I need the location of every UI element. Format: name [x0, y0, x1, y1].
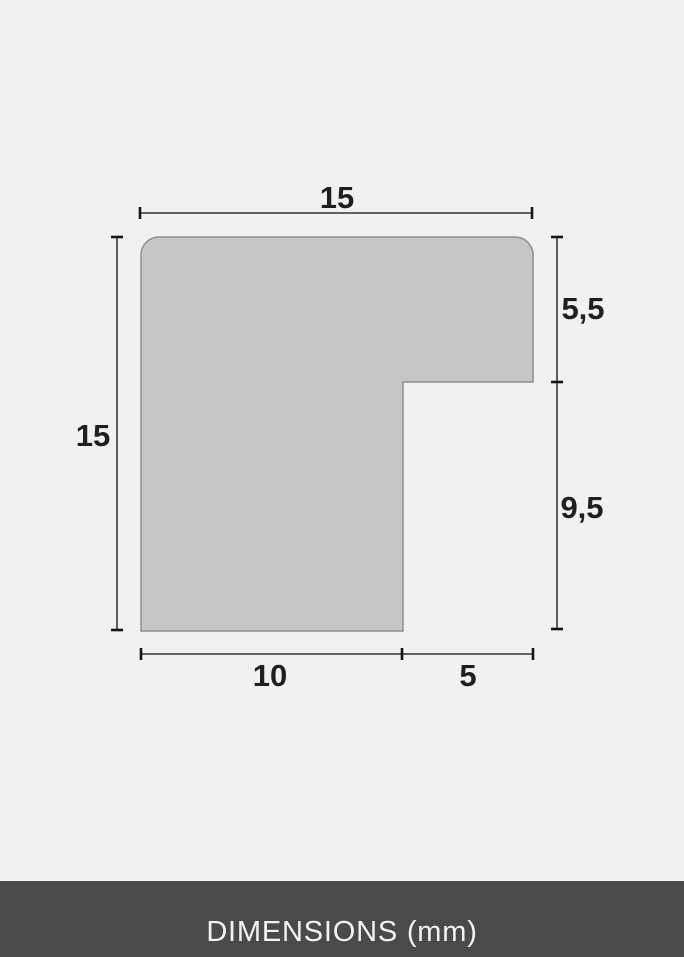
page: 15 15 5,5 9,5 10 5 DIMENSIONS (mm)	[0, 0, 684, 957]
dim-label-bottom-inner: 10	[253, 658, 287, 693]
dim-label-top-width: 15	[320, 180, 354, 215]
dim-label-bottom-outer: 5	[459, 658, 476, 693]
frame-profile-shape	[141, 237, 533, 631]
diagram-canvas: 15 15 5,5 9,5 10 5	[0, 0, 684, 881]
footer-caption: DIMENSIONS (mm)	[206, 916, 477, 949]
dim-label-right-lower: 9,5	[560, 490, 603, 525]
dim-label-left-height: 15	[76, 418, 110, 453]
dim-label-right-upper: 5,5	[561, 291, 604, 326]
frame-profile-diagram: 15 15 5,5 9,5 10 5	[0, 0, 684, 881]
footer-bar: DIMENSIONS (mm)	[0, 881, 684, 957]
